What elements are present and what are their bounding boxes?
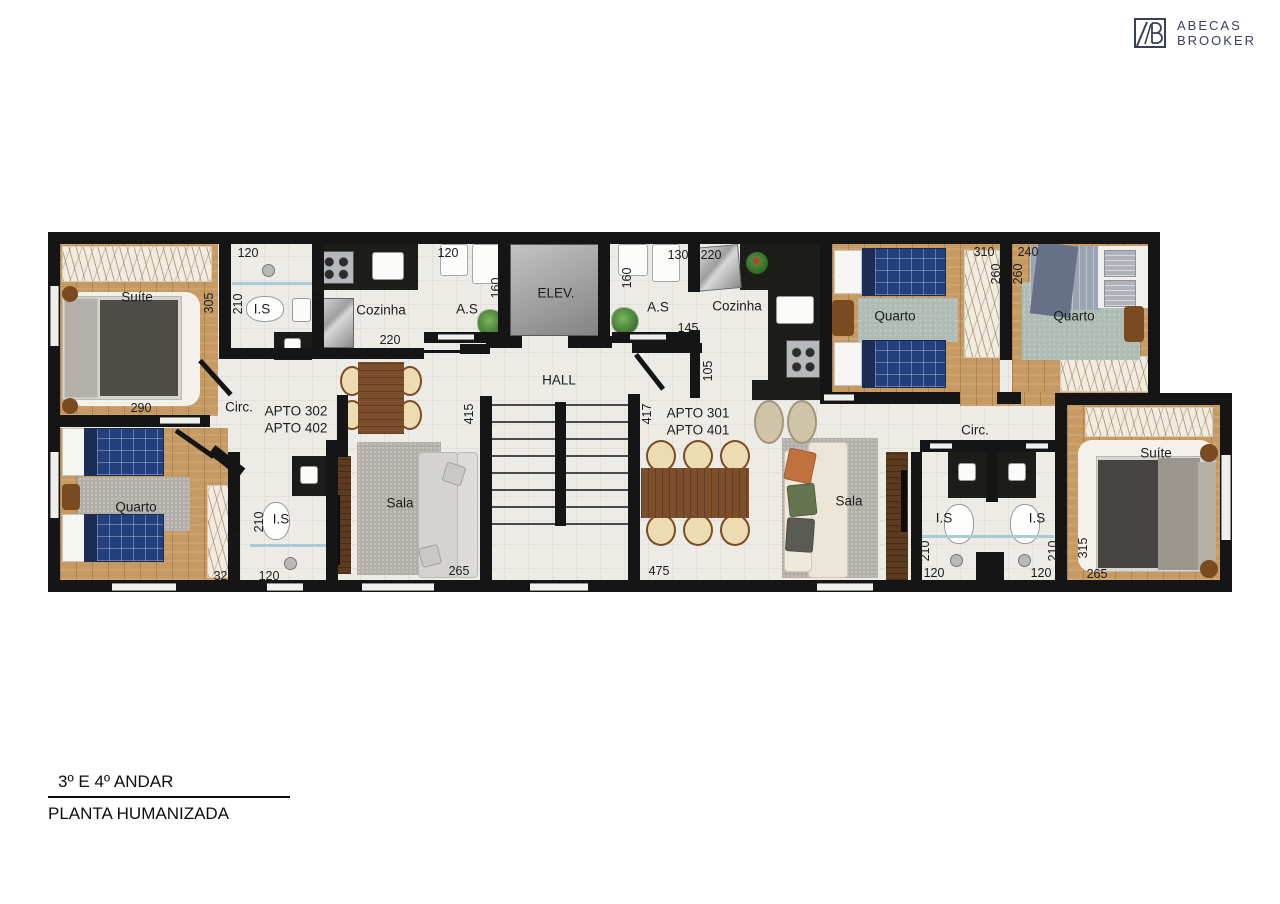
plan-type-title: PLANTA HUMANIZADA <box>48 804 290 824</box>
room-label-su-te: Suíte <box>121 290 153 305</box>
room-label-cozinha: Cozinha <box>356 303 406 318</box>
room-label-quarto: Quarto <box>874 309 915 324</box>
room-label-i-s: I.S <box>254 302 271 317</box>
room-label-quarto: Quarto <box>115 500 156 515</box>
room-label-elev: ELEV. <box>537 286 574 301</box>
room-label-hall: HALL <box>542 373 576 388</box>
room-label-i-s: I.S <box>273 512 290 527</box>
room-label-sala: Sala <box>835 494 862 509</box>
dim-label-415: 415 <box>462 404 476 425</box>
room-label-cozinha: Cozinha <box>712 299 762 314</box>
room-label-quarto: Quarto <box>1053 309 1094 324</box>
floor-plan: SuíteI.SCozinhaA.SELEV.A.SCozinhaQuartoQ… <box>0 0 1280 904</box>
dim-label-105: 105 <box>701 361 715 382</box>
plan-labels-layer: SuíteI.SCozinhaA.SELEV.A.SCozinhaQuartoQ… <box>0 0 1280 904</box>
dim-label-310: 310 <box>974 245 995 259</box>
dim-label-305: 305 <box>202 293 216 314</box>
dim-label-290: 290 <box>131 401 152 415</box>
room-label-i-s: I.S <box>1029 511 1046 526</box>
dim-label-210: 210 <box>252 512 266 533</box>
room-label-a-s: A.S <box>647 300 669 315</box>
dim-label-120: 120 <box>924 566 945 580</box>
room-label-circ: Circ. <box>961 423 989 438</box>
dim-label-260: 260 <box>989 264 1003 285</box>
dim-label-145: 145 <box>678 321 699 335</box>
title-block: 3º E 4º ANDAR PLANTA HUMANIZADA <box>48 772 290 824</box>
dim-label-160: 160 <box>620 268 634 289</box>
dim-label-120: 120 <box>1031 566 1052 580</box>
room-label-a-s: A.S <box>456 302 478 317</box>
apartment-label-apto-402: APTO 402 <box>265 421 328 436</box>
dim-label-315: 315 <box>1076 538 1090 559</box>
dim-label-260: 260 <box>1011 264 1025 285</box>
apartment-label-apto-401: APTO 401 <box>667 423 730 438</box>
dim-label-417: 417 <box>640 404 654 425</box>
dim-label-475: 475 <box>649 564 670 578</box>
dim-label-130: 130 <box>668 248 689 262</box>
dim-label-160: 160 <box>489 278 503 299</box>
dim-label-120: 120 <box>238 246 259 260</box>
dim-label-240: 240 <box>1018 245 1039 259</box>
room-label-circ: Circ. <box>225 400 253 415</box>
dim-label-210: 210 <box>918 541 932 562</box>
dim-label-265: 265 <box>1087 567 1108 581</box>
dim-label-120: 120 <box>438 246 459 260</box>
dim-label-120: 120 <box>259 569 280 583</box>
apartment-label-apto-302: APTO 302 <box>265 404 328 419</box>
page: { "logo": { "monogram": "AB", "name_line… <box>0 0 1280 904</box>
dim-label-265: 265 <box>449 564 470 578</box>
dim-label-180: 180 <box>312 280 326 301</box>
dim-label-325: 325 <box>214 569 235 583</box>
room-label-i-s: I.S <box>936 511 953 526</box>
dim-label-210: 210 <box>1046 541 1060 562</box>
dim-label-220: 220 <box>701 248 722 262</box>
dim-label-210: 210 <box>231 294 245 315</box>
room-label-sala: Sala <box>386 496 413 511</box>
dim-label-275: 275 <box>227 534 241 555</box>
apartment-label-apto-301: APTO 301 <box>667 406 730 421</box>
dim-label-220: 220 <box>380 333 401 347</box>
floor-title: 3º E 4º ANDAR <box>58 772 290 792</box>
title-divider <box>48 796 290 798</box>
room-label-su-te: Suíte <box>1140 446 1172 461</box>
